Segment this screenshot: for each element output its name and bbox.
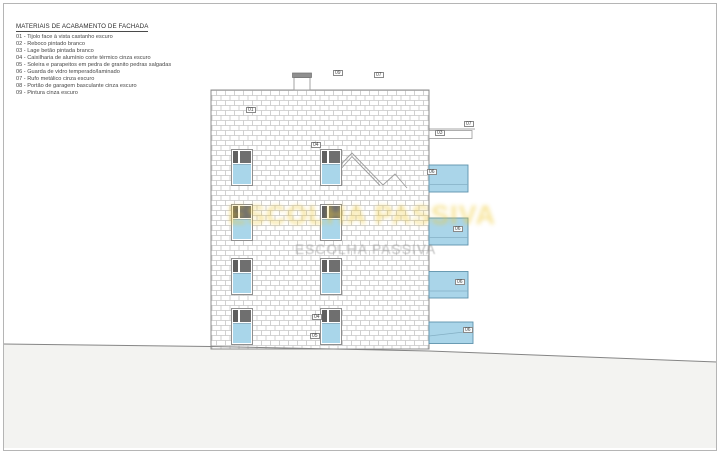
window-mid-f4 [320, 149, 342, 186]
window-left-f1 [231, 308, 253, 345]
materials-legend: MATERIAIS DE ACABAMENTO DE FACHADA 01 - … [16, 15, 171, 97]
callout-04-window-frame-gf: 04 [312, 314, 322, 320]
legend-item-06: 06 - Guarda de vidro temperado/laminado [16, 69, 171, 76]
legend-item-05: 05 - Soleira e parapeitos em pedra de gr… [16, 62, 171, 69]
window-glass [233, 273, 251, 293]
ground-area [3, 344, 717, 448]
callout-04-window-frame: 04 [311, 142, 321, 148]
callout-06-glass-guard-f4: 06 [427, 169, 437, 175]
window-left-f4 [231, 149, 253, 186]
callout-07-slab-flashing: 07 [464, 121, 474, 127]
callout-01-face-brick: 01 [246, 107, 256, 113]
window-shutter-box [322, 151, 340, 163]
callout-06-glass-guard-f3: 06 [453, 226, 463, 232]
legend-title: MATERIAIS DE ACABAMENTO DE FACHADA [16, 23, 148, 32]
callout-07-roof-flashing: 07 [374, 72, 384, 78]
callout-05-stone-sill: 05 [310, 333, 320, 339]
chimney-body [294, 78, 310, 91]
window-shutter-box [233, 310, 251, 322]
window-glass [322, 273, 340, 293]
window-shutter-box [233, 260, 251, 272]
window-shutter-box [233, 151, 251, 163]
callout-09-chimney-paint: 09 [333, 70, 343, 76]
window-shutter-box [322, 260, 340, 272]
legend-item-07: 07 - Rufo metálico cinza escuro [16, 76, 171, 83]
window-glass [322, 164, 340, 184]
legend-item-02: 02 - Reboco pintado branco [16, 41, 171, 48]
window-glass [322, 323, 340, 343]
callout-06-glass-guard-f2: 06 [455, 279, 465, 285]
legend-item-01: 01 - Tijolo face à vista castanho escuro [16, 34, 171, 41]
callout-03-concrete-slab: 03 [435, 130, 445, 136]
callout-06-glass-guard-f1: 06 [463, 327, 473, 333]
legend-item-03: 03 - Lage betão pintada branco [16, 48, 171, 55]
watermark-subtext: ESCOLHA PASSIVA [295, 242, 436, 257]
window-left-f2 [231, 258, 253, 295]
window-mid-f1 [320, 308, 342, 345]
legend-item-04: 04 - Caixilharia de alumínio corte térmi… [16, 55, 171, 62]
window-shutter-box [322, 310, 340, 322]
window-glass [233, 323, 251, 343]
legend-item-09: 09 - Pintura cinza escuro [16, 90, 171, 97]
window-glass [233, 164, 251, 184]
legend-item-08: 08 - Portão de garagem basculante cinza … [16, 83, 171, 90]
drawing-sheet: ESCOLHA PASSIVA ESCOLHA PASSIVA 09 07 01… [0, 0, 720, 454]
chimney-cap [293, 73, 312, 78]
window-mid-f2 [320, 258, 342, 295]
